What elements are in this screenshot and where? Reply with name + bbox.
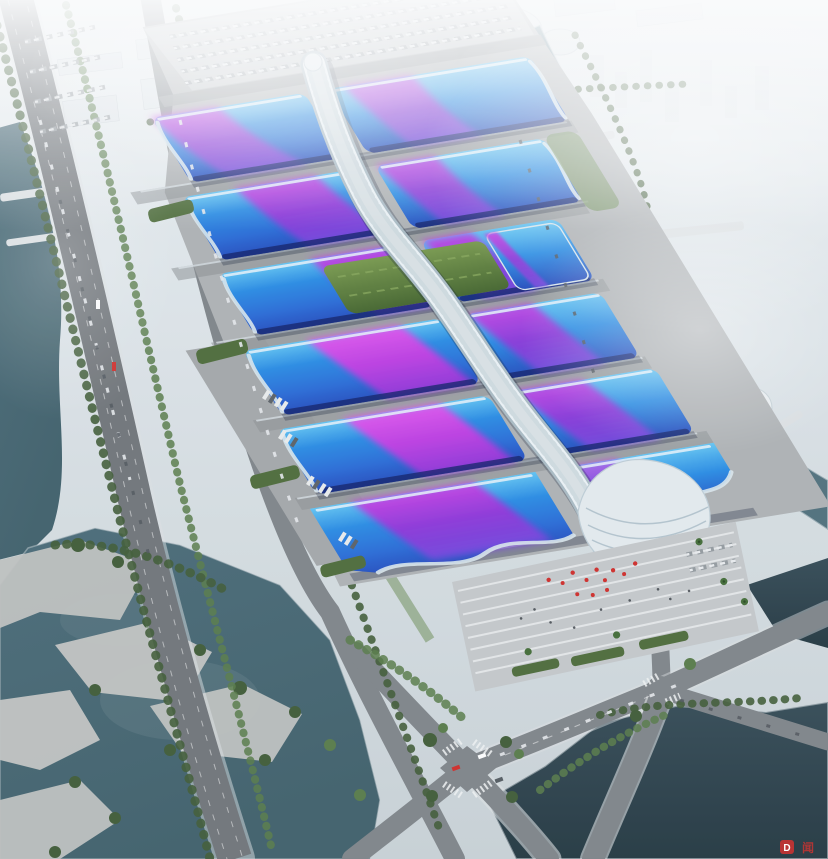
haze-overlays (0, 0, 828, 859)
watermark-suffix: 闻 (802, 841, 814, 855)
watermark-logo-letter: D (783, 843, 790, 854)
aerial-rendering: D 闻 (0, 0, 828, 859)
scene-canvas: D 闻 (0, 0, 828, 859)
